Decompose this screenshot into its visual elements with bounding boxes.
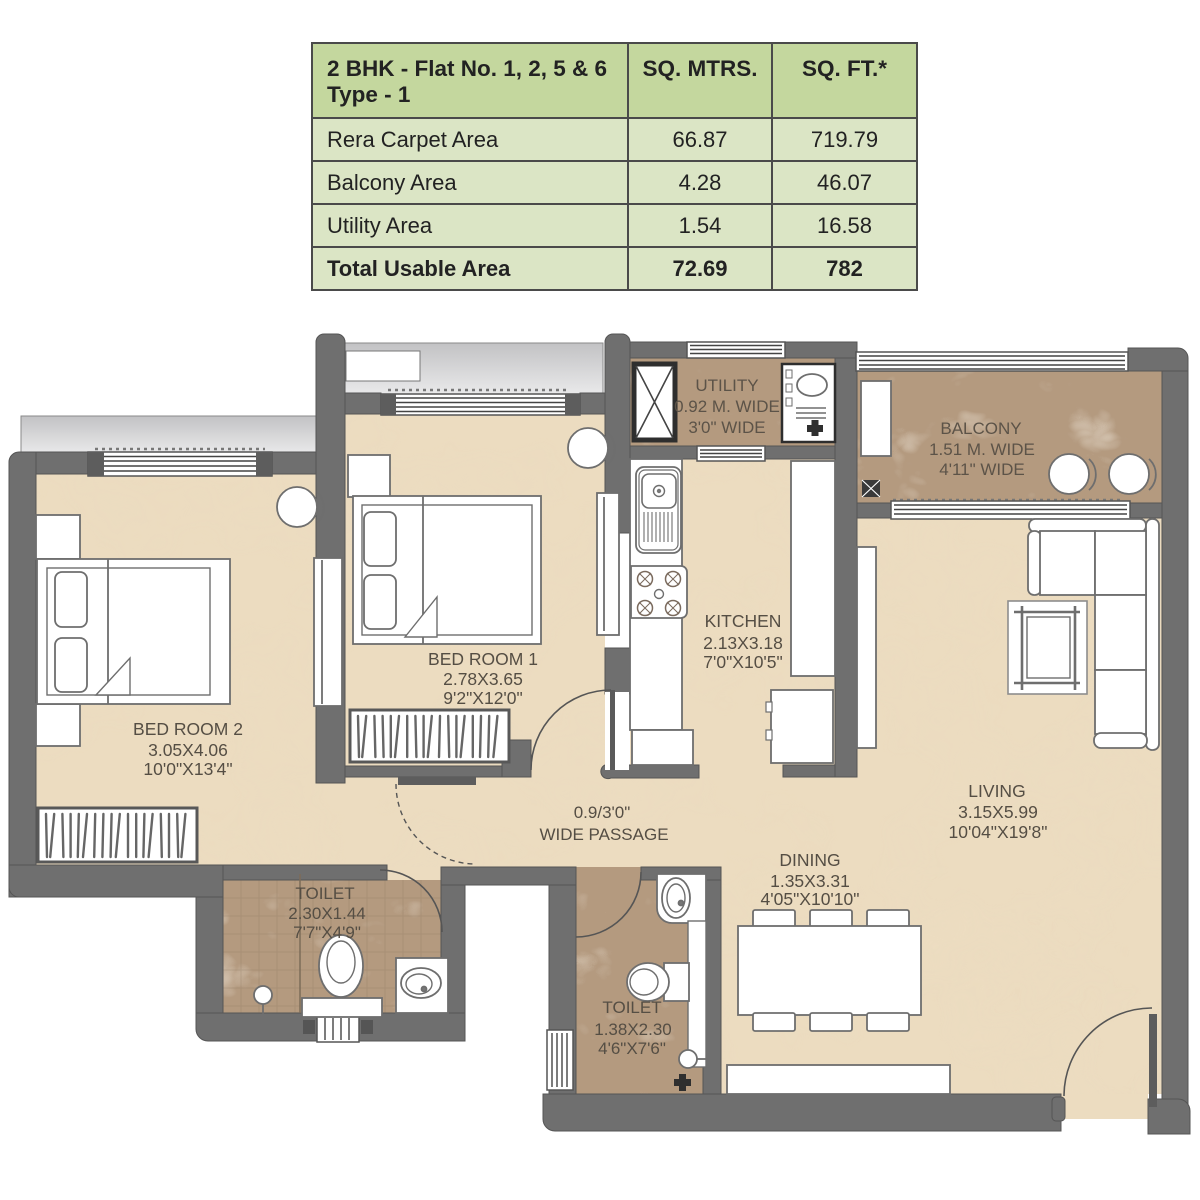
svg-text:TOILET: TOILET [295,884,354,903]
svg-text:DINING: DINING [779,850,840,870]
svg-text:4'11" WIDE: 4'11" WIDE [939,460,1025,479]
svg-text:4'6"X7'6": 4'6"X7'6" [598,1039,666,1058]
svg-text:10'04"X19'8": 10'04"X19'8" [949,822,1048,842]
svg-text:1.35X3.31: 1.35X3.31 [770,871,850,891]
svg-text:BED ROOM 2: BED ROOM 2 [133,719,243,739]
svg-text:4'05"X10'10": 4'05"X10'10" [761,889,860,909]
svg-text:3'0" WIDE: 3'0" WIDE [688,418,765,437]
svg-text:BALCONY: BALCONY [940,419,1021,438]
svg-text:2.78X3.65: 2.78X3.65 [443,669,523,689]
svg-text:UTILITY: UTILITY [695,376,758,395]
svg-text:1.51 M. WIDE: 1.51 M. WIDE [929,440,1035,459]
svg-text:1.38X2.30: 1.38X2.30 [594,1020,672,1039]
svg-text:10'0"X13'4": 10'0"X13'4" [143,759,232,779]
svg-text:TOILET: TOILET [602,998,661,1017]
svg-text:BED ROOM 1: BED ROOM 1 [428,649,538,669]
svg-text:WIDE PASSAGE: WIDE PASSAGE [539,825,668,844]
svg-text:2.30X1.44: 2.30X1.44 [288,904,366,923]
svg-text:3.05X4.06: 3.05X4.06 [148,740,228,760]
svg-text:2.13X3.18: 2.13X3.18 [703,633,783,653]
svg-text:9'2"X12'0": 9'2"X12'0" [443,688,522,708]
svg-text:7'7"X4'9": 7'7"X4'9" [293,923,361,942]
svg-text:3.15X5.99: 3.15X5.99 [958,802,1038,822]
svg-text:KITCHEN: KITCHEN [705,611,782,631]
svg-text:0.9/3'0": 0.9/3'0" [574,803,631,822]
svg-text:7'0"X10'5": 7'0"X10'5" [703,652,782,672]
svg-text:0.92 M. WIDE: 0.92 M. WIDE [674,397,780,416]
svg-text:LIVING: LIVING [968,781,1025,801]
